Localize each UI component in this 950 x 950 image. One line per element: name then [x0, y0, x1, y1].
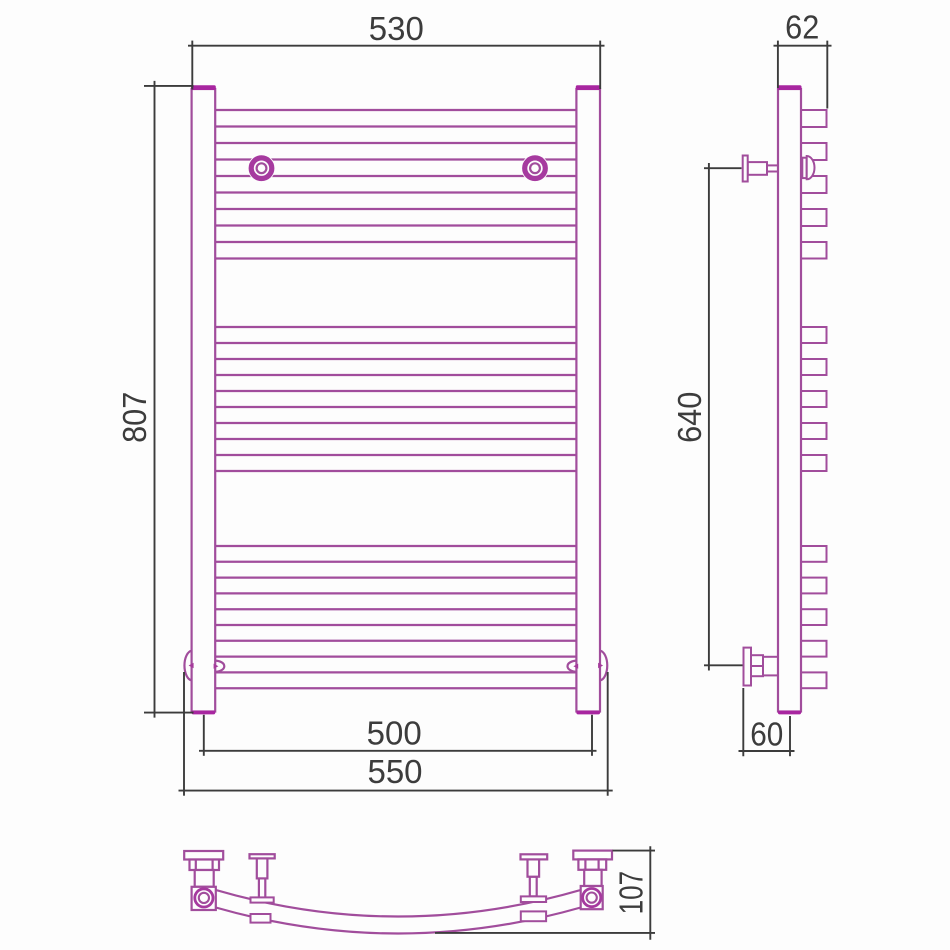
- svg-text:62: 62: [785, 8, 819, 45]
- svg-text:60: 60: [750, 716, 783, 753]
- svg-text:807: 807: [116, 392, 153, 443]
- svg-text:530: 530: [369, 10, 424, 47]
- svg-text:500: 500: [367, 715, 422, 752]
- svg-text:107: 107: [614, 871, 651, 914]
- svg-text:550: 550: [367, 753, 422, 790]
- svg-text:640: 640: [671, 392, 708, 443]
